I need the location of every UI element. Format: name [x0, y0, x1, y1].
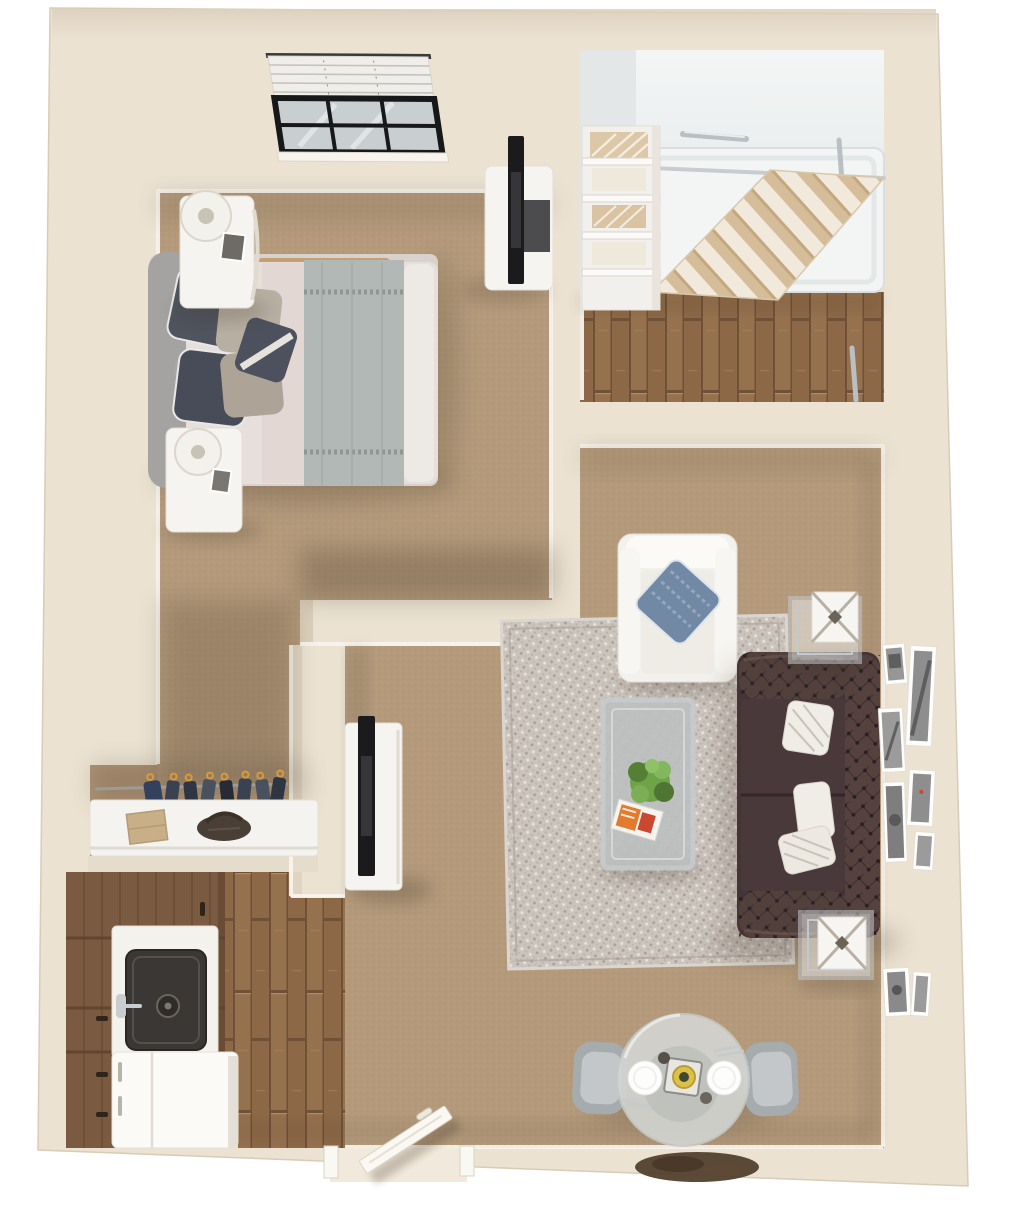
refrigerator: [112, 1052, 238, 1148]
door-jamb-right: [460, 1146, 474, 1176]
shelf-side-panel: [652, 126, 660, 310]
closet-counter: [90, 800, 318, 856]
armchair-arm-right: [715, 548, 736, 674]
picture-frame-8: [910, 971, 931, 1016]
dresser-media-box: [524, 200, 550, 252]
towel-cream-1: [592, 168, 646, 191]
lamp-top-finial: [198, 208, 214, 224]
armchair: [618, 534, 737, 694]
picture-frame-3: [878, 707, 905, 772]
picture-frame-2: [905, 645, 936, 746]
picture-frame-5: [883, 782, 908, 863]
armchair-arm-left: [619, 548, 640, 674]
fridge-handle-2: [118, 1096, 122, 1116]
door-jamb-left: [324, 1146, 338, 1178]
shelf-board-2: [582, 195, 660, 202]
sink-drain-dot: [165, 1003, 172, 1010]
bedroom-tv-screen-edge: [511, 172, 521, 248]
towel-shelving-unit: [582, 126, 660, 310]
nightstand-top-decor: [220, 233, 245, 261]
centerpiece-cup: [658, 1052, 670, 1064]
towel-cream-2: [592, 242, 646, 265]
top-wall-shading: [52, 9, 936, 39]
kitchen: [66, 872, 238, 1148]
fridge-side-shade: [228, 1056, 238, 1148]
decor-cube-north: [812, 592, 858, 642]
middle-wall-end-face: [300, 600, 313, 645]
window-with-blinds: [263, 53, 449, 162]
picture-frame-1: [882, 643, 907, 685]
doormat: [635, 1152, 759, 1182]
shelf-board-4: [582, 269, 660, 276]
closet-kitchen-wall-band: [88, 856, 318, 872]
lamp-bottom-finial: [191, 445, 205, 459]
potted-plant: [628, 759, 674, 803]
centerpiece-jar: [700, 1092, 712, 1104]
dining-chair-right: [742, 1041, 800, 1118]
centerpiece-center: [679, 1072, 689, 1082]
cardboard-box: [126, 810, 167, 844]
decor-cube-south: [818, 917, 866, 969]
coffee-table: [598, 700, 702, 882]
side-table-north: [786, 592, 866, 674]
floor-plan-canvas: [0, 0, 1010, 1223]
nightstand-bottom-decor: [211, 469, 232, 493]
sofa-pillow-1: [781, 700, 834, 757]
mattress-foot-edge: [404, 264, 434, 482]
picture-frame-6: [913, 831, 936, 870]
shelf-board-1: [582, 158, 660, 165]
living-tv-screen-edge: [361, 756, 372, 836]
side-table-south: [796, 912, 880, 992]
nightstand-top: [172, 191, 268, 322]
picture-frame-4: [907, 769, 936, 826]
picture-frame-7: [883, 967, 911, 1016]
kitchen-wood-floor: [225, 870, 345, 1148]
apartment: [38, 8, 968, 1186]
sofa-tufting-back: [845, 655, 880, 935]
shelf-board-3: [582, 232, 660, 239]
fridge-handle-1: [118, 1062, 122, 1082]
window-sill: [277, 152, 448, 162]
